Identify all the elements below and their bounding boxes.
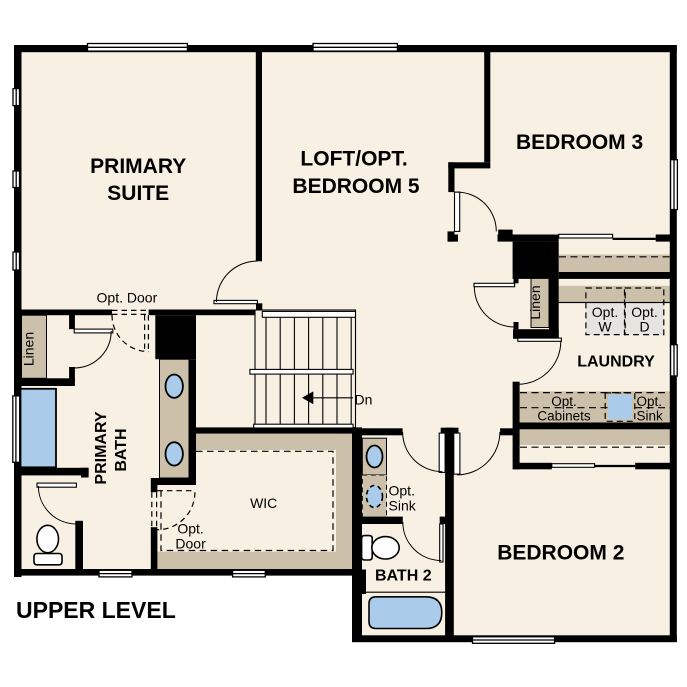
svg-text:PRIMARY: PRIMARY xyxy=(93,411,110,485)
svg-text:BEDROOM 5: BEDROOM 5 xyxy=(292,175,420,198)
svg-text:BEDROOM 2: BEDROOM 2 xyxy=(497,542,624,565)
svg-text:Dn: Dn xyxy=(355,391,373,407)
svg-text:Opt.: Opt. xyxy=(177,521,203,537)
svg-text:LAUNDRY: LAUNDRY xyxy=(577,354,655,371)
svg-text:SUITE: SUITE xyxy=(107,182,169,205)
svg-text:BATH: BATH xyxy=(113,428,130,471)
svg-text:Cabinets: Cabinets xyxy=(537,409,591,424)
svg-text:Opt.: Opt. xyxy=(389,483,415,499)
svg-text:D: D xyxy=(639,318,649,334)
svg-text:W: W xyxy=(598,318,612,334)
svg-text:UPPER LEVEL: UPPER LEVEL xyxy=(16,597,176,623)
svg-text:Opt.: Opt. xyxy=(551,394,577,409)
svg-text:Sink: Sink xyxy=(389,498,417,514)
svg-text:PRIMARY: PRIMARY xyxy=(90,155,186,178)
svg-text:Linen: Linen xyxy=(21,332,37,366)
svg-text:Linen: Linen xyxy=(527,285,543,319)
svg-text:BEDROOM 3: BEDROOM 3 xyxy=(516,131,643,154)
svg-text:BATH 2: BATH 2 xyxy=(375,568,432,585)
svg-text:Opt.: Opt. xyxy=(637,394,663,409)
svg-text:Sink: Sink xyxy=(637,409,664,424)
svg-text:WIC: WIC xyxy=(250,495,277,511)
svg-text:Door: Door xyxy=(175,536,206,552)
svg-text:LOFT/OPT.: LOFT/OPT. xyxy=(300,148,407,171)
svg-text:Opt. Door: Opt. Door xyxy=(97,290,158,306)
